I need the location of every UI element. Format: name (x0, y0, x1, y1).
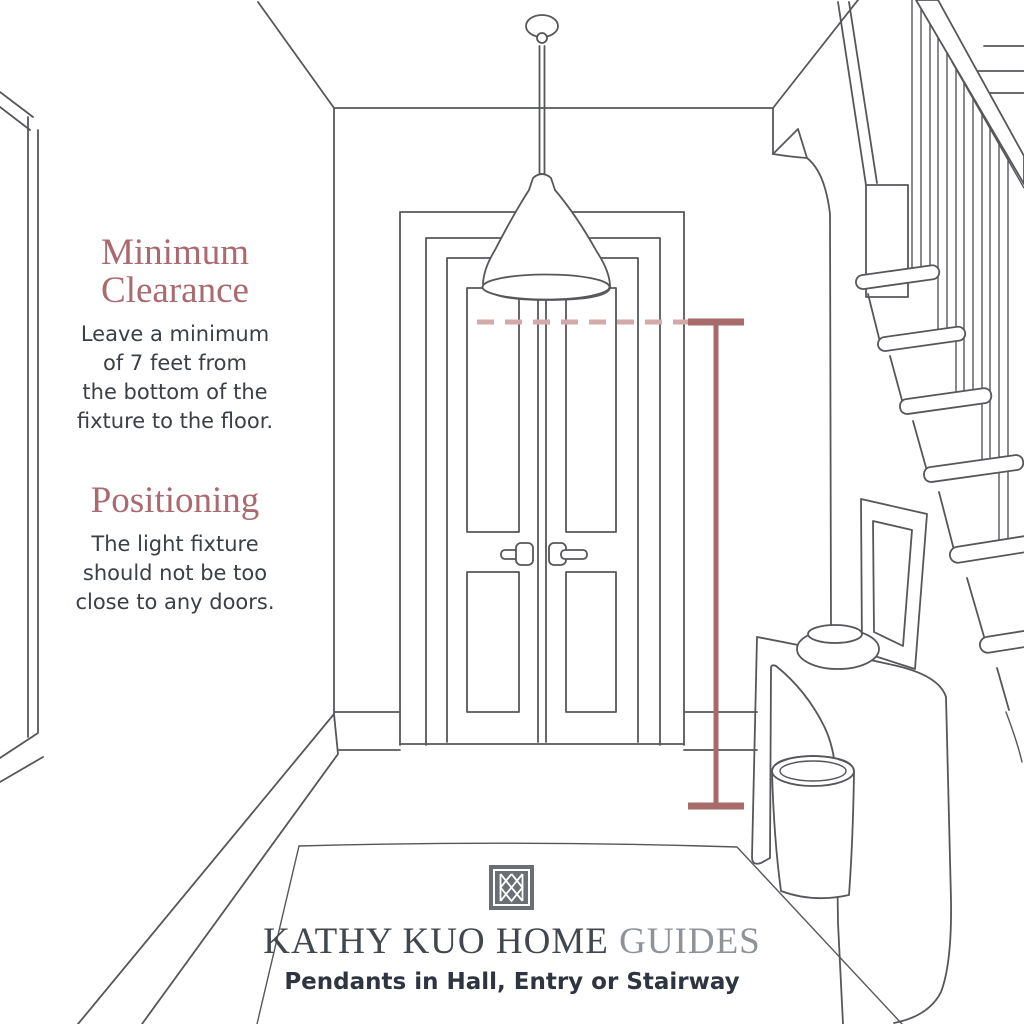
section-body-line: close to any doors. (55, 588, 295, 617)
basket (772, 756, 854, 898)
section-body-line: fixture to the floor. (55, 407, 295, 436)
handrail (916, 0, 1024, 184)
guide-tagline: Pendants in Hall, Entry or Stairway (0, 969, 1024, 995)
brand-wordmark: KATHY KUO HOME GUIDES (0, 920, 1024, 963)
section-heading: Minimum (55, 234, 295, 272)
section-body-line: The light fixture (55, 530, 295, 559)
section-body-line: should not be too (55, 559, 295, 588)
brand-suffix: GUIDES (619, 921, 761, 962)
pendant-shade-rim (483, 275, 610, 300)
newel-post-lines (838, 2, 877, 185)
door-handles (501, 543, 587, 565)
section-body-line: the bottom of the (55, 378, 295, 407)
minimum-clearance-section: Minimum Clearance Leave a minimum of 7 f… (55, 234, 295, 436)
pendant-cord (540, 46, 545, 178)
kathy-kuo-home-logo (489, 865, 534, 910)
section-heading: Clearance (55, 272, 295, 310)
section-body-line: of 7 feet from (55, 349, 295, 378)
pendant-light (483, 15, 611, 300)
brand-name: KATHY KUO HOME (263, 921, 609, 962)
door-panels (467, 288, 616, 712)
right-wall-corner (773, 108, 831, 632)
section-heading: Positioning (55, 482, 295, 520)
brand-monogram-icon (489, 865, 534, 910)
left-doorway-trim (0, 92, 43, 782)
positioning-section: Positioning The light fixture should not… (55, 482, 295, 617)
section-body-line: Leave a minimum (55, 320, 295, 349)
